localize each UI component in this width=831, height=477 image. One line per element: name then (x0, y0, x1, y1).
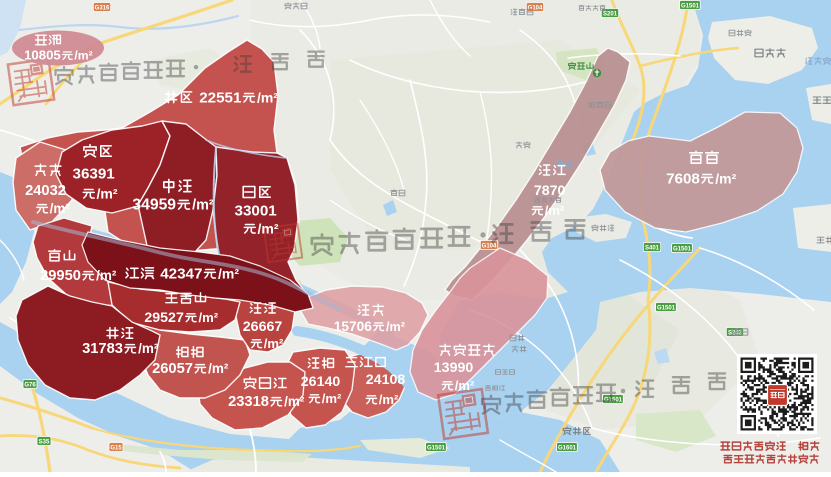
svg-text:/m²: /m² (386, 320, 405, 334)
svg-text:/m²: /m² (264, 336, 284, 351)
svg-text:S201: S201 (603, 12, 618, 18)
svg-text:G15: G15 (110, 446, 122, 452)
svg-text:24032: 24032 (25, 183, 66, 199)
svg-text:7608: 7608 (666, 170, 700, 187)
svg-text:/m²: /m² (258, 220, 279, 236)
svg-text:/m²: /m² (192, 197, 214, 213)
svg-text:/m²: /m² (74, 49, 92, 63)
svg-text:G1501: G1501 (673, 247, 692, 253)
svg-text:/m²: /m² (199, 310, 219, 325)
svg-text:/m²: /m² (218, 265, 239, 281)
svg-text:10805: 10805 (24, 48, 61, 63)
svg-text:22551: 22551 (199, 89, 242, 106)
svg-text:33001: 33001 (235, 202, 278, 219)
svg-text:G1601: G1601 (558, 446, 577, 452)
svg-text:G316: G316 (95, 6, 110, 12)
svg-text:15706: 15706 (334, 319, 372, 334)
svg-text:29527: 29527 (144, 310, 184, 326)
svg-text:S35: S35 (39, 440, 50, 446)
svg-text:26057: 26057 (152, 361, 193, 377)
svg-text:42347: 42347 (160, 265, 202, 282)
svg-text:23318: 23318 (228, 394, 269, 410)
svg-text:/m²: /m² (715, 170, 736, 186)
svg-text:G1501: G1501 (681, 4, 700, 10)
svg-text:/m²: /m² (96, 268, 117, 283)
svg-text:/m²: /m² (284, 394, 305, 409)
svg-text:/m²: /m² (455, 378, 475, 393)
svg-text:29950: 29950 (40, 268, 81, 284)
svg-text:26140: 26140 (301, 374, 341, 390)
svg-text:13990: 13990 (434, 360, 474, 376)
svg-text:G1501: G1501 (427, 446, 446, 452)
svg-text:G76: G76 (24, 383, 36, 389)
svg-text:34959: 34959 (132, 196, 176, 213)
svg-text:36391: 36391 (73, 165, 116, 182)
svg-text:31783: 31783 (82, 341, 123, 357)
svg-text:/m²: /m² (545, 203, 565, 218)
svg-text:S401: S401 (645, 246, 660, 252)
svg-text:G104: G104 (528, 6, 543, 12)
svg-text:/m²: /m² (138, 341, 159, 356)
svg-text:/m²: /m² (50, 201, 71, 216)
svg-text:24108: 24108 (366, 372, 406, 388)
svg-text:7870: 7870 (534, 183, 566, 199)
svg-text:/m²: /m² (97, 185, 118, 201)
svg-text:G1501: G1501 (657, 306, 676, 312)
svg-text:/m²: /m² (208, 361, 229, 376)
svg-text:G104: G104 (482, 244, 497, 250)
svg-text:/m²: /m² (322, 391, 342, 406)
svg-text:/m²: /m² (379, 392, 399, 407)
svg-text:/m²: /m² (257, 89, 278, 105)
svg-text:26667: 26667 (243, 319, 283, 335)
svg-text:S203: S203 (728, 331, 743, 337)
